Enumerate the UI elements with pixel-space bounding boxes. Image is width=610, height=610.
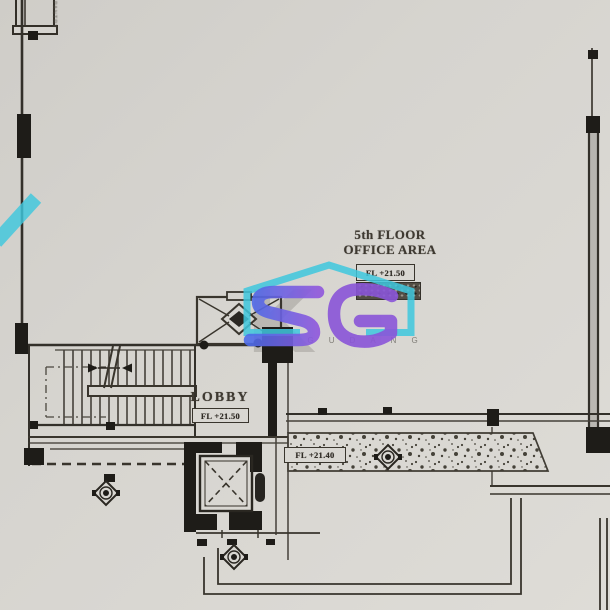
office-area-title-line1: 5th FLOOR <box>340 228 440 243</box>
counterweight <box>255 473 265 502</box>
floorplan-scan: K SIGUDANG <box>0 0 610 610</box>
left-wall <box>15 0 31 354</box>
door-pivot <box>254 339 263 348</box>
corridor-level-tag: FL +21.40 <box>284 447 346 463</box>
stair-direction-arrow <box>88 346 132 388</box>
column-marker <box>586 116 600 133</box>
right-wall <box>586 48 600 427</box>
lobby-level-tag: FL +21.50 <box>192 408 249 423</box>
column-grid-marker <box>92 481 120 505</box>
door-pivot <box>200 341 209 350</box>
column-marker <box>487 409 499 426</box>
column-marker <box>15 323 28 354</box>
lobby-label: LOBBY <box>188 390 252 406</box>
office-area-title-line2: OFFICE AREA <box>340 243 440 258</box>
floorplan-linework <box>0 0 610 610</box>
column-marker <box>17 114 31 158</box>
top-left-vertical-label: PANTRY <box>51 1 57 37</box>
column-grid-marker <box>220 545 248 569</box>
office-level-tag: FL +21.50 <box>356 264 415 281</box>
finish-stamp <box>356 282 421 300</box>
bottom-void-walls <box>204 498 607 610</box>
office-area-title: 5th FLOOR OFFICE AREA <box>340 228 440 258</box>
